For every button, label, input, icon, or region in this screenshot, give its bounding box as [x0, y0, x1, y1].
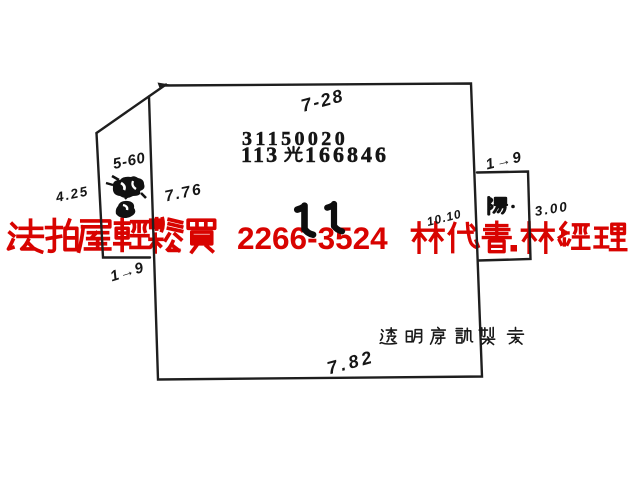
- svg-text:166846: 166846: [305, 142, 389, 167]
- svg-text:1→9: 1→9: [484, 148, 525, 173]
- svg-text:7.82: 7.82: [325, 346, 377, 378]
- svg-text:3.00: 3.00: [534, 199, 570, 219]
- svg-text:113: 113: [241, 142, 279, 167]
- svg-text:5-60: 5-60: [111, 149, 147, 173]
- svg-text:7.76: 7.76: [163, 181, 204, 206]
- svg-text:10.10: 10.10: [425, 207, 463, 229]
- svg-text:4.25: 4.25: [54, 183, 91, 205]
- svg-text:1→9: 1→9: [108, 259, 146, 285]
- svg-text:7-28: 7-28: [299, 85, 347, 116]
- svg-text:2266-3524: 2266-3524: [237, 220, 388, 256]
